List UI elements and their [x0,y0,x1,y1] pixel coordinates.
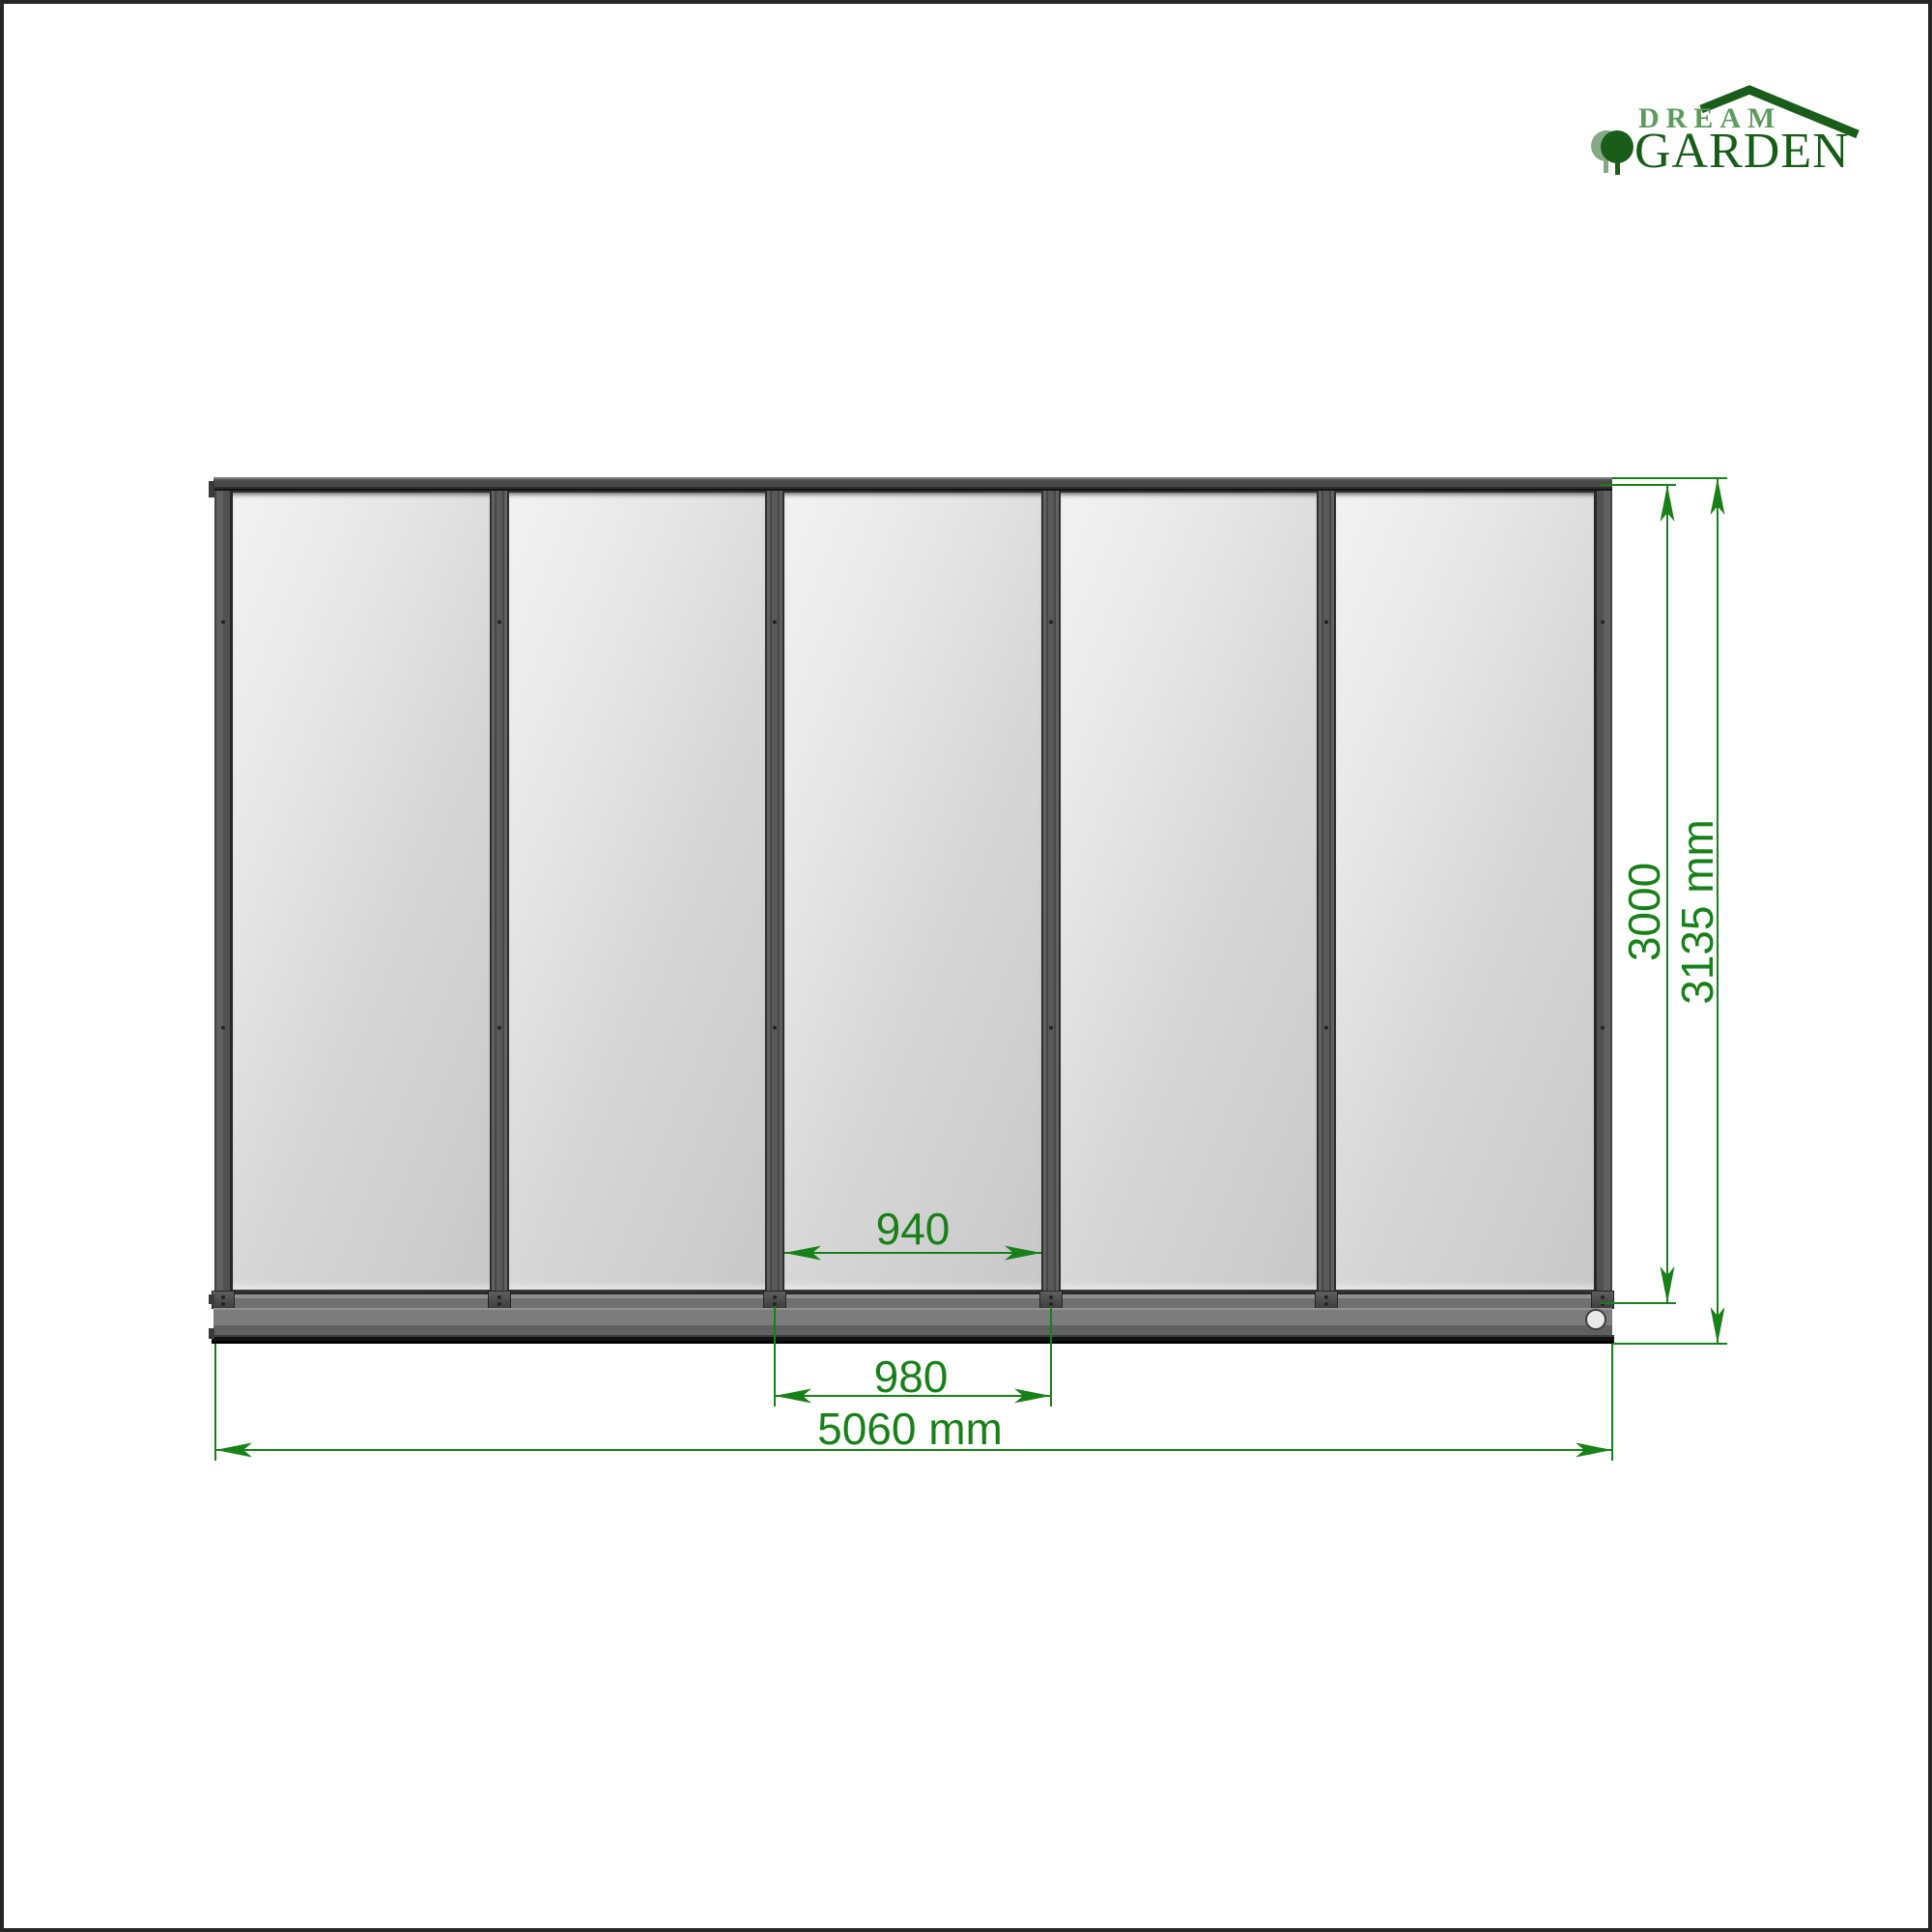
dim-overall-height-label: 3135 mm [1675,819,1719,1005]
glass-panel-1 [233,491,490,1292]
screw-icon [497,1302,501,1306]
left-post [214,491,233,1292]
mullion-2 [765,491,784,1292]
screw-icon [1049,1026,1053,1030]
screw-icon [497,1295,501,1299]
dim-opening-width-label: 940 [876,1207,951,1251]
glass-panel-2 [509,491,765,1292]
screw-icon [773,1295,777,1299]
glass-panel-4 [1061,491,1317,1292]
post-foot-bracket [1591,1291,1614,1309]
screw-icon [1324,1026,1328,1030]
logo-trees-icon [1591,130,1634,175]
dim-post-spacing-label: 980 [874,1354,949,1399]
drain-cap [1585,1309,1606,1330]
brand-name-garden: GARDEN [1634,127,1850,177]
base-end-tab [209,1294,214,1304]
screw-icon [221,1026,225,1030]
base-end-tab [209,1328,214,1339]
screw-icon [1049,1302,1053,1306]
screw-icon [1049,620,1053,624]
screw-icon [773,1302,777,1306]
post-foot-bracket [763,1291,786,1309]
screw-icon [1324,1295,1328,1299]
screw-icon [1601,1295,1605,1299]
screw-icon [773,1026,777,1030]
mullion-4 [1317,491,1336,1292]
post-foot-bracket [488,1291,511,1309]
dim-total-width-label: 5060 mm [817,1406,1003,1451]
screw-icon [1324,1302,1328,1306]
drawing-canvas: DREAM GARDEN [0,0,1932,1932]
glass-panel-3 [784,491,1041,1292]
glass-panel-5 [1336,491,1594,1292]
mullion-1 [490,491,509,1292]
right-post [1594,491,1612,1292]
screw-icon [773,620,777,624]
screw-icon [1324,620,1328,624]
post-foot-bracket [1039,1291,1063,1309]
screw-icon [1601,1026,1605,1030]
screw-icon [497,620,501,624]
screw-icon [221,620,225,624]
top-rail-end-tab [209,481,214,497]
mullion-3 [1041,491,1061,1292]
screw-icon [1601,620,1605,624]
screw-icon [221,1295,225,1299]
screw-icon [1601,1302,1605,1306]
screw-icon [497,1026,501,1030]
post-foot-bracket [1315,1291,1338,1309]
base-bottom-strip [212,1335,1614,1344]
screw-icon [1049,1295,1053,1299]
base-gutter-profile [213,1308,1612,1335]
screw-icon [221,1302,225,1306]
post-foot-bracket [212,1291,235,1309]
bottom-glazing-bar [214,1292,1612,1308]
top-rail [213,477,1612,491]
dim-frame-height-label: 3000 [1622,863,1666,961]
